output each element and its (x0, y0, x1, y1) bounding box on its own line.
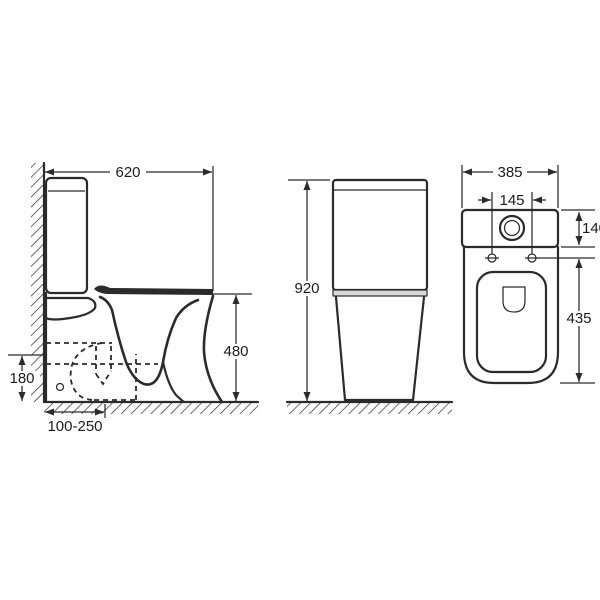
cistern-body (333, 180, 427, 290)
dim-cistern-depth: 140 (561, 210, 600, 247)
dim-label-620: 620 (115, 164, 140, 181)
seat-top (477, 272, 546, 372)
pan-front-inner-line (163, 362, 184, 402)
wall-hatch (31, 163, 44, 402)
dim-label-920: 920 (294, 280, 319, 297)
front-view: 920 (287, 180, 452, 414)
side-view: 620 480 180 100-250 (4, 163, 258, 435)
dim-hole-spacing: 145 (478, 192, 546, 209)
dim-label-480: 480 (223, 343, 248, 360)
trap-outline-hidden (46, 343, 158, 400)
cistern-body (46, 178, 87, 293)
drawing-canvas: 620 480 180 100-250 (0, 0, 600, 600)
fixing-point-circle (57, 384, 64, 391)
cistern-pan-seam (333, 290, 427, 296)
bowl-cavity-curve (100, 297, 198, 385)
wall-section (31, 163, 44, 402)
rim-section (46, 298, 95, 320)
floor-hatch (287, 403, 452, 414)
toilet-dimension-diagram: 620 480 180 100-250 (0, 0, 600, 600)
dim-label-140: 140 (582, 220, 600, 237)
dim-label-435: 435 (566, 310, 591, 327)
dim-label-145: 145 (499, 192, 524, 209)
dim-overall-height: 920 (288, 180, 330, 401)
top-view: 385 145 140 435 (462, 164, 600, 383)
flow-arrow-dashed (96, 371, 111, 384)
cistern-front (333, 180, 427, 296)
dim-overall-depth: 620 (45, 164, 213, 291)
cistern-side-profile (46, 178, 87, 293)
pan-profile (46, 293, 222, 402)
seat-lid-profile (94, 285, 213, 295)
trap-bend-dashed (71, 343, 102, 400)
water-inlet-shape (503, 287, 525, 312)
cistern-top (462, 210, 558, 247)
pedestal-front (336, 297, 424, 400)
dim-label-100-250: 100-250 (47, 418, 102, 435)
dim-label-385: 385 (497, 164, 522, 181)
floor-section-middle (287, 402, 452, 414)
dim-label-180: 180 (9, 370, 34, 387)
